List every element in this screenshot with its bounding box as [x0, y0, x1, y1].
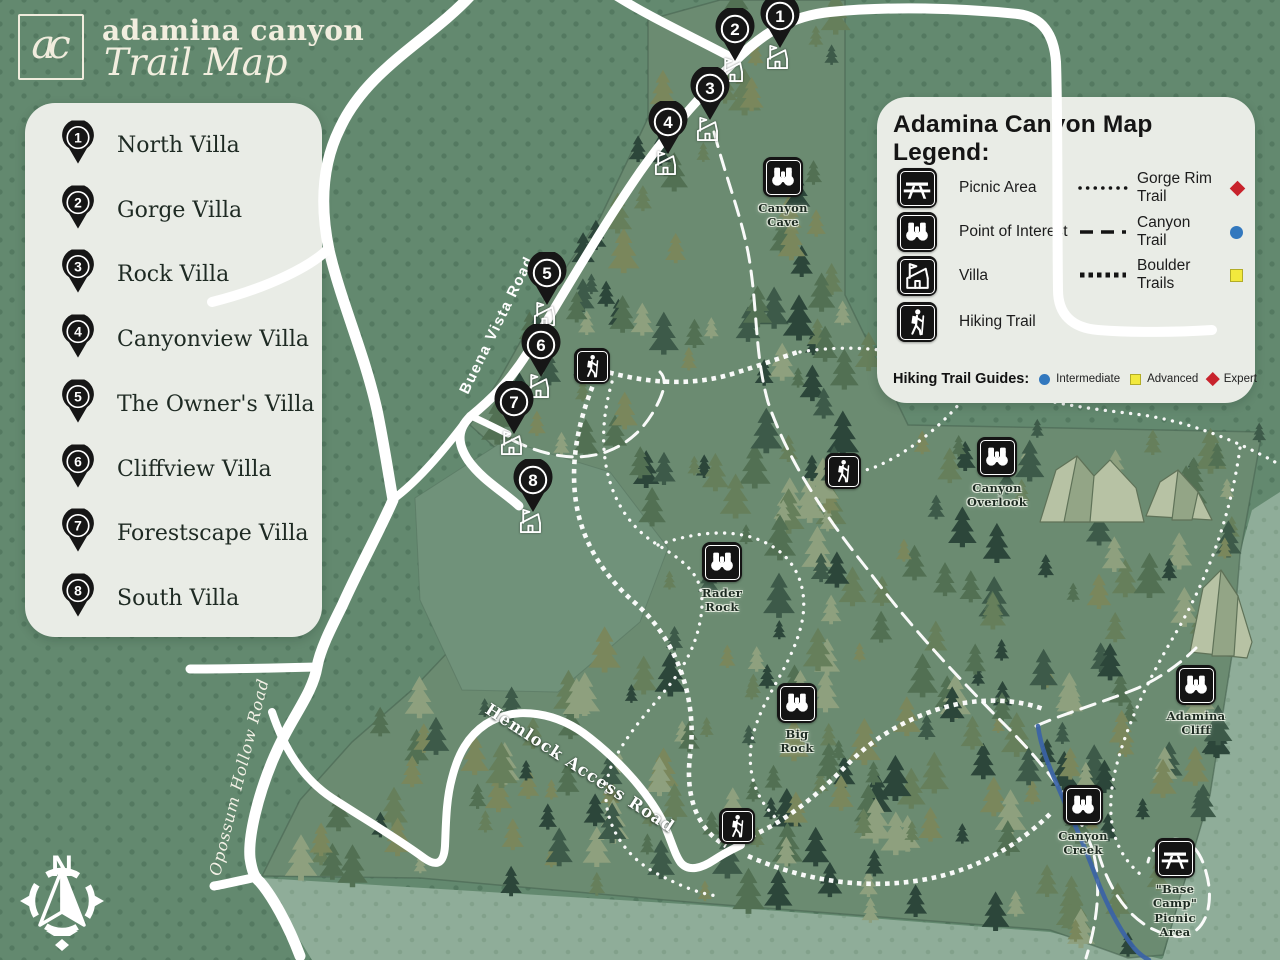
villa-list-item-cliffview-villa: 6 Cliffview Villa	[25, 443, 322, 495]
poi-label: Adamina Cliff	[1167, 709, 1226, 738]
villa-name: Rock Villa	[117, 262, 229, 287]
villa-list-item-forestscape-villa: 7 Forestscape Villa	[25, 507, 322, 559]
villa-name: Gorge Villa	[117, 198, 242, 223]
binoculars-icon	[897, 212, 937, 252]
guide-expert: Expert	[1208, 373, 1257, 385]
square-difficulty-icon	[1130, 374, 1141, 385]
villa-marker-1[interactable]: 1	[758, 0, 802, 47]
villa-house-icon-3	[693, 115, 721, 143]
numbered-pin-icon: 2	[60, 186, 96, 235]
poi-label: "Base Camp" Picnic Area	[1153, 882, 1197, 940]
canyon-creek-marker[interactable]: Canyon Creek	[1063, 785, 1103, 825]
road-label-opossum-hollow-road: Opossum Hollow Road	[205, 676, 272, 877]
villa-name: Cliffview Villa	[117, 457, 272, 482]
circle-difficulty-icon	[1039, 374, 1050, 385]
svg-text:8: 8	[74, 583, 82, 599]
canyon-overlook-marker[interactable]: Canyon Overlook	[977, 437, 1017, 477]
svg-text:5: 5	[74, 389, 82, 405]
villa-name: Canyonview Villa	[117, 327, 309, 352]
picnic-table-icon	[897, 168, 937, 208]
hiker-icon	[897, 302, 937, 342]
villa-marker-6[interactable]: 6	[519, 324, 563, 376]
page-subtitle: Trail Map	[104, 45, 364, 80]
svg-text:7: 7	[74, 518, 82, 534]
legend-trail-label: Gorge Rim Trail	[1137, 170, 1215, 206]
hiking-trailhead-marker-1[interactable]	[574, 348, 610, 384]
hiking-trailhead-marker-3[interactable]	[719, 808, 755, 844]
legend-item-label: Villa	[959, 267, 988, 285]
legend-title: Adamina Canyon Map Legend:	[893, 111, 1255, 167]
legend-item-picnic-area: Picnic Area	[897, 168, 1037, 208]
numbered-pin-icon: 8	[60, 574, 96, 623]
rader-rock-marker[interactable]: Rader Rock	[702, 542, 742, 582]
hiking-trailhead-marker-2[interactable]	[825, 453, 861, 489]
villa-list-item-canyonview-villa: 4 Canyonview Villa	[25, 313, 322, 365]
guide-label: Advanced	[1147, 373, 1198, 385]
trail-style-sample	[1077, 271, 1129, 279]
legend-trail-label: Boulder Trails	[1137, 257, 1215, 293]
villa-list-panel: 1 North Villa 2 Gorge Villa 3 Rock Villa…	[25, 103, 322, 637]
villa-marker-4[interactable]: 4	[646, 101, 690, 153]
poi-label: Canyon Cave	[758, 201, 807, 230]
villa-house-icon	[897, 256, 937, 296]
canyon-cave-marker[interactable]: Canyon Cave	[763, 157, 803, 197]
poi-label: Canyon Creek	[1058, 829, 1107, 858]
svg-text:6: 6	[74, 454, 82, 470]
legend-item-label: Point of Interest	[959, 223, 1068, 241]
poi-label: Rader Rock	[702, 586, 742, 615]
road-label-hemlock-access-road: Hemlock Access Road	[482, 700, 678, 837]
rock-formations	[1040, 456, 1252, 658]
base-camp-picnic-area-marker[interactable]: "Base Camp" Picnic Area	[1155, 838, 1195, 878]
diamond-difficulty-icon	[1230, 180, 1246, 196]
villa-list-item-north-villa: 1 North Villa	[25, 119, 322, 171]
legend-trail-gorge-rim-trail: Gorge Rim Trail	[1077, 168, 1247, 208]
guide-label: Intermediate	[1056, 373, 1120, 385]
legend-trail-label: Canyon Trail	[1137, 214, 1215, 250]
guide-intermediate: Intermediate	[1039, 373, 1120, 385]
villa-house-icon-7	[497, 429, 525, 457]
big-rock-marker[interactable]: Big Rock	[777, 683, 817, 723]
villa-name: The Owner's Villa	[117, 392, 314, 417]
svg-text:8: 8	[528, 471, 537, 490]
svg-text:1: 1	[775, 7, 784, 26]
numbered-pin-icon: 3	[60, 250, 96, 299]
villa-marker-3[interactable]: 3	[688, 67, 732, 119]
guides-title: Hiking Trail Guides:	[893, 371, 1029, 387]
numbered-pin-icon: 4	[60, 315, 96, 364]
map-legend-panel: Adamina Canyon Map Legend: Picnic Area P…	[877, 97, 1255, 403]
adamina-cliff-marker[interactable]: Adamina Cliff	[1176, 665, 1216, 705]
logo-monogram: ac	[31, 22, 63, 68]
guide-advanced: Advanced	[1130, 373, 1198, 385]
svg-text:4: 4	[663, 113, 673, 132]
villa-marker-7[interactable]: 7	[492, 381, 536, 433]
svg-text:2: 2	[74, 195, 82, 211]
villa-house-icon-8	[516, 507, 544, 535]
trail-style-sample	[1077, 228, 1129, 236]
legend-item-villa: Villa	[897, 256, 988, 296]
legend-trail-boulder-trails: Boulder Trails	[1077, 255, 1247, 295]
poi-label: Canyon Overlook	[967, 481, 1027, 510]
compass-rose: N	[12, 843, 112, 958]
villa-list-item-south-villa: 8 South Villa	[25, 572, 322, 624]
numbered-pin-icon: 6	[60, 445, 96, 494]
svg-text:3: 3	[74, 259, 82, 275]
hiking-trail-guides: Hiking Trail Guides: Intermediate Advanc…	[893, 371, 1243, 387]
numbered-pin-icon: 7	[60, 509, 96, 558]
numbered-pin-icon: 5	[60, 380, 96, 429]
villa-marker-5[interactable]: 5	[525, 252, 569, 304]
villa-marker-8[interactable]: 8	[511, 459, 555, 511]
open-field-areas	[262, 492, 1280, 960]
compass-east-point	[90, 893, 104, 909]
villa-name: Forestscape Villa	[117, 521, 309, 546]
legend-trail-canyon-trail: Canyon Trail	[1077, 212, 1247, 252]
svg-text:7: 7	[509, 393, 518, 412]
guide-label: Expert	[1224, 373, 1257, 385]
poi-label: Big Rock	[780, 727, 813, 756]
trail-style-sample	[1077, 184, 1129, 192]
trail-map-canvas: ac adamina canyon Trail Map 1 North Vill…	[0, 0, 1280, 960]
gorge-rim-trails	[604, 348, 1275, 896]
header: ac adamina canyon Trail Map	[18, 14, 364, 81]
villa-name: North Villa	[117, 133, 240, 158]
villa-list-item-gorge-villa: 2 Gorge Villa	[25, 184, 322, 236]
square-difficulty-icon	[1230, 269, 1243, 282]
villa-list-item-rock-villa: 3 Rock Villa	[25, 248, 322, 300]
circle-difficulty-icon	[1230, 226, 1243, 239]
compass-north-label: N	[51, 850, 73, 883]
legend-item-label: Picnic Area	[959, 179, 1037, 197]
legend-item-hiking-trail: Hiking Trail	[897, 302, 1036, 342]
legend-item-label: Hiking Trail	[959, 313, 1036, 331]
villa-marker-2[interactable]: 2	[713, 8, 757, 60]
villa-list-item-the-owner-s-villa: 5 The Owner's Villa	[25, 378, 322, 430]
villa-name: South Villa	[117, 586, 239, 611]
diamond-difficulty-icon	[1206, 372, 1219, 385]
svg-text:3: 3	[705, 79, 714, 98]
villa-house-icon-1	[763, 43, 791, 71]
svg-text:6: 6	[536, 336, 545, 355]
compass-west-point	[20, 893, 34, 909]
numbered-pin-icon: 1	[60, 121, 96, 170]
brand-logo: ac	[18, 14, 84, 80]
svg-text:5: 5	[542, 264, 551, 283]
svg-text:4: 4	[74, 324, 82, 340]
legend-item-point-of-interest: Point of Interest	[897, 212, 1068, 252]
svg-text:2: 2	[730, 20, 739, 39]
svg-text:1: 1	[74, 130, 82, 146]
villa-house-icon-4	[651, 149, 679, 177]
